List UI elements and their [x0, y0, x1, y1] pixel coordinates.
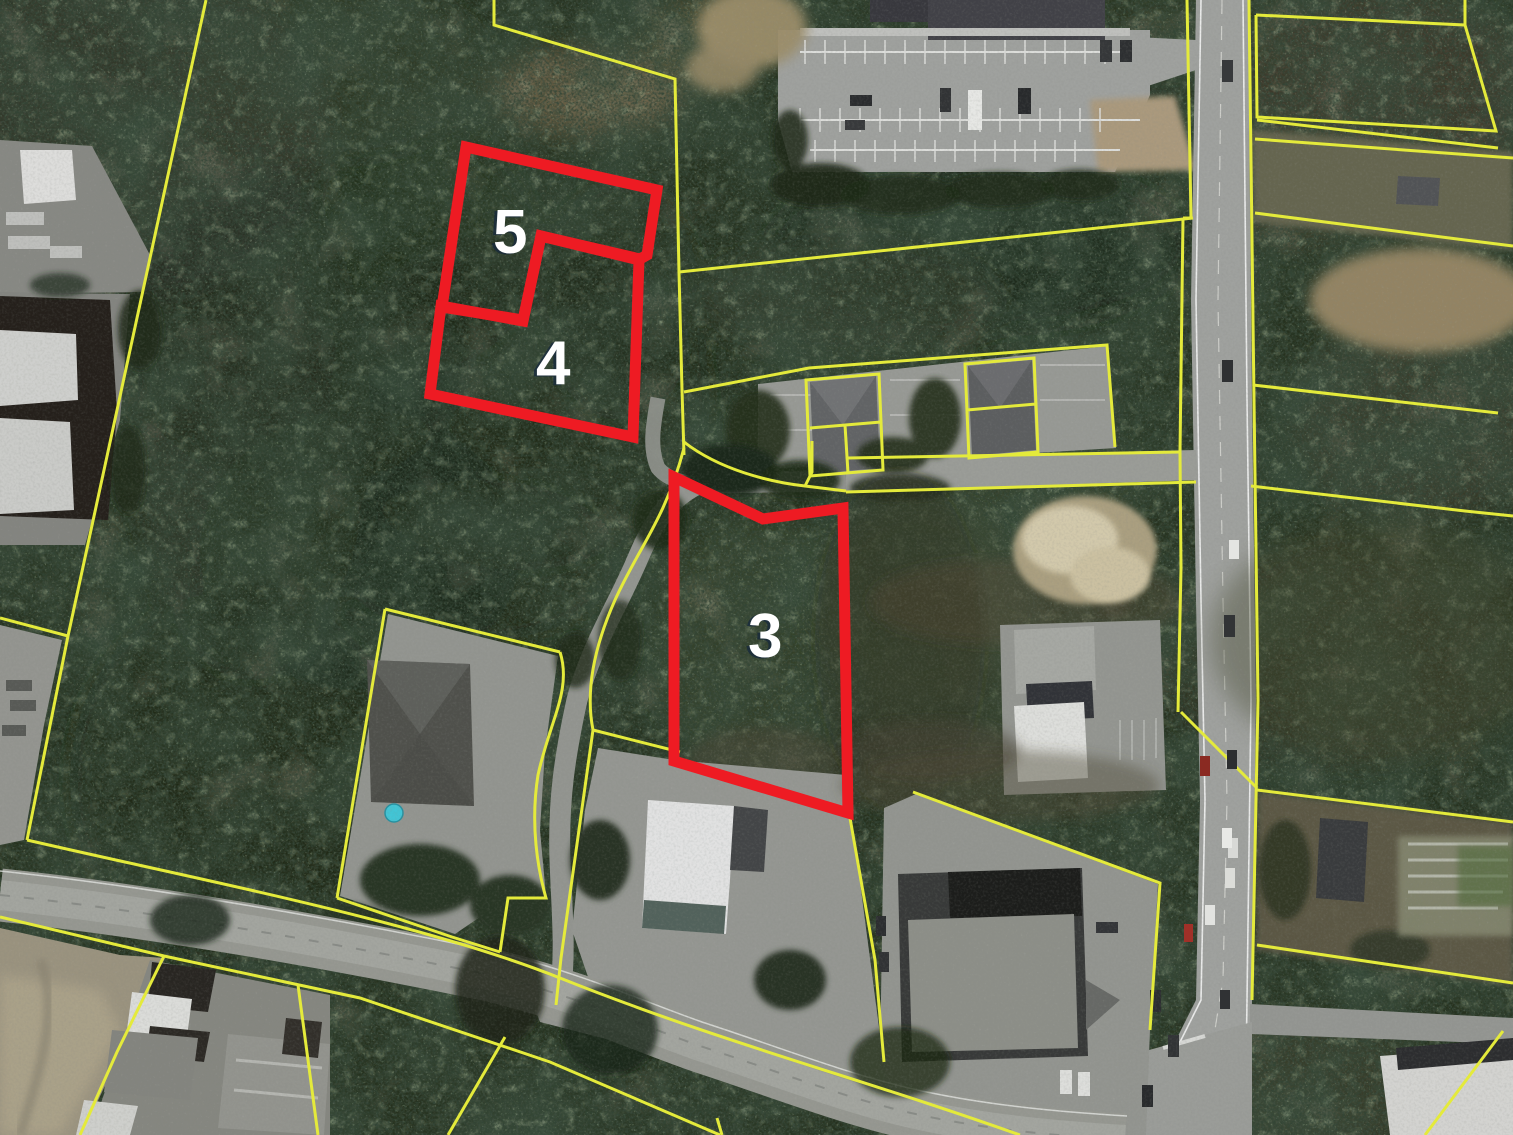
svg-text:4: 4: [536, 329, 571, 398]
svg-text:5: 5: [493, 198, 527, 267]
svg-text:3: 3: [748, 602, 782, 671]
